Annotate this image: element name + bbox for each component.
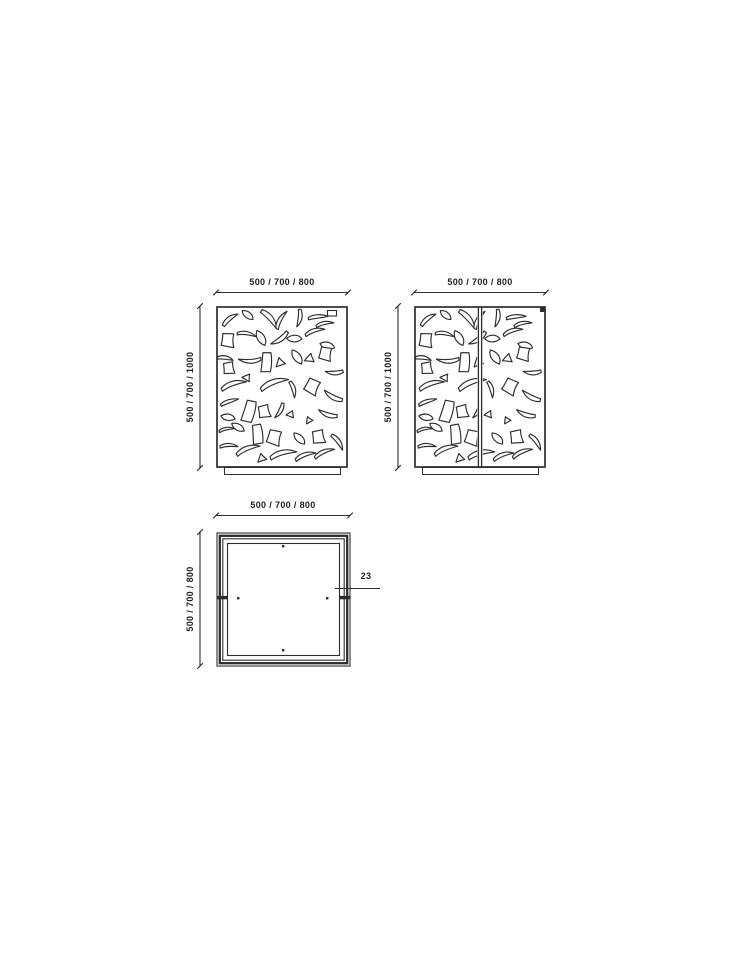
fixing-dot-top — [282, 545, 284, 547]
dimension-line — [216, 289, 348, 297]
dimension-line — [414, 289, 546, 297]
rear-height-dimension: 500 / 700 / 1000 — [382, 306, 402, 468]
dimension-line — [196, 306, 204, 468]
plan-depth-dimension: 500 / 700 / 800 — [184, 532, 204, 666]
lock-plate-detail — [328, 311, 337, 317]
rear-width-dimension-label: 500 / 700 / 800 — [414, 276, 546, 289]
plan-depth-dimension-label: 500 / 700 / 800 — [185, 566, 195, 631]
dimension-line — [196, 532, 204, 666]
wall-thickness-label: 23 — [353, 571, 379, 581]
plan-outer-wall — [217, 533, 350, 666]
fixing-dot-bottom — [282, 649, 284, 651]
dimension-line — [216, 512, 350, 520]
front-height-dimension: 500 / 700 / 1000 — [184, 306, 204, 468]
wall-tick-left — [217, 596, 228, 599]
corner-hinge-detail — [540, 308, 545, 313]
front-panel — [216, 306, 348, 468]
fixing-dot-right — [326, 597, 328, 599]
rear-plinth — [422, 467, 539, 475]
plan-inner-wall — [223, 539, 344, 660]
rear-panel — [414, 306, 546, 468]
technical-drawing-sheet: 500 / 700 / 800 500 / 700 / 1000 500 / — [0, 0, 750, 962]
plan-interior-outline — [228, 544, 340, 656]
plan-wall-core — [220, 536, 347, 663]
front-width-dimension-label: 500 / 700 / 800 — [216, 276, 348, 289]
dimension-line — [394, 306, 402, 468]
front-width-dimension: 500 / 700 / 800 — [216, 276, 348, 297]
front-plinth — [224, 467, 341, 475]
front-panel-outline — [217, 307, 347, 467]
fixing-dot-left — [237, 597, 239, 599]
plan-width-dimension-label: 500 / 700 / 800 — [216, 499, 350, 512]
wall-tick-right — [340, 596, 351, 599]
plan-body — [216, 532, 388, 668]
rear-height-dimension-label: 500 / 700 / 1000 — [383, 352, 393, 423]
plan-width-dimension: 500 / 700 / 800 — [216, 499, 350, 520]
front-height-dimension-label: 500 / 700 / 1000 — [185, 352, 195, 423]
rear-width-dimension: 500 / 700 / 800 — [414, 276, 546, 297]
